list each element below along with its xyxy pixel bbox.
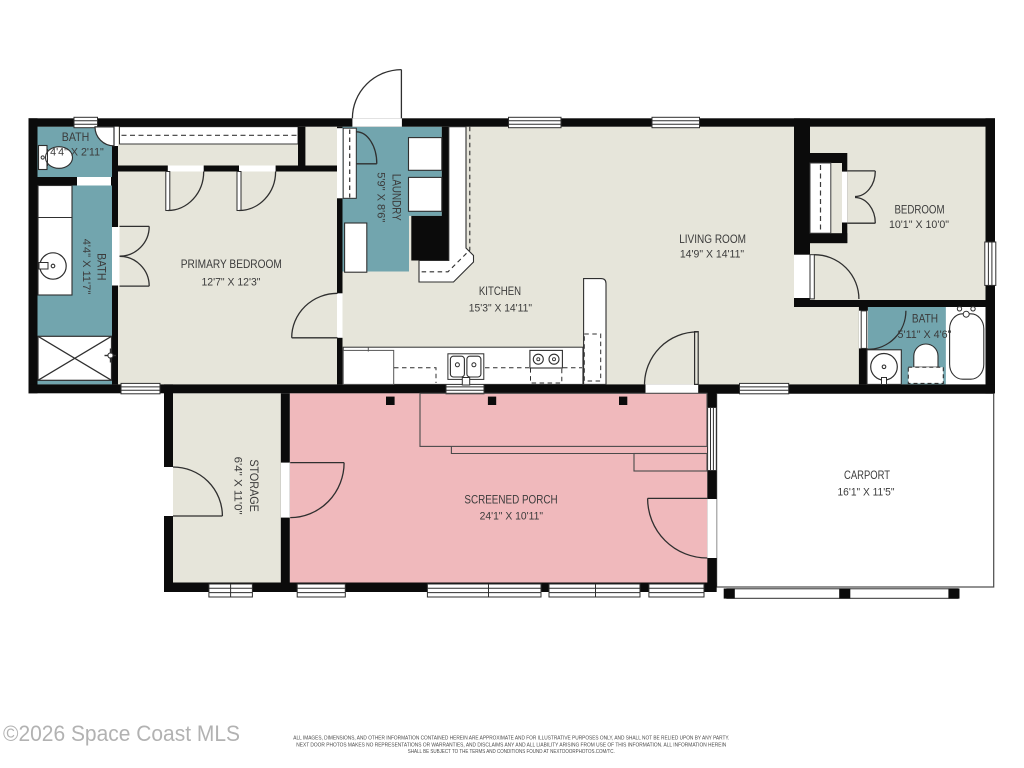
svg-text:BATH: BATH [95,253,109,280]
svg-text:KITCHEN: KITCHEN [479,284,521,298]
svg-text:SCREENED PORCH: SCREENED PORCH [464,492,557,506]
svg-text:14'9" X 14'11": 14'9" X 14'11" [680,249,744,261]
svg-text:5'11" X 4'6": 5'11" X 4'6" [898,329,952,341]
svg-text:CARPORT: CARPORT [844,468,891,482]
svg-text:NEXT DOOR PHOTOS MAKES NO REPR: NEXT DOOR PHOTOS MAKES NO REPRESENTATION… [296,742,726,748]
svg-text:5'9" X 8'6": 5'9" X 8'6" [374,172,386,222]
svg-text:ALL IMAGES, DIMENSIONS, AND OT: ALL IMAGES, DIMENSIONS, AND OTHER INFORM… [293,736,729,742]
svg-text:6'4" X 11'0": 6'4" X 11'0" [231,457,243,515]
svg-text:STORAGE: STORAGE [247,459,261,512]
svg-text:4'4" X 11'7": 4'4" X 11'7" [80,239,92,295]
svg-text:LAUNDRY: LAUNDRY [390,174,404,221]
svg-text:PRIMARY BEDROOM: PRIMARY BEDROOM [181,257,282,271]
svg-text:BATH: BATH [62,130,90,144]
svg-text:©2026 Space Coast MLS: ©2026 Space Coast MLS [3,721,240,746]
svg-text:12'7" X 12'3": 12'7" X 12'3" [202,276,261,288]
svg-text:15'3" X 14'11": 15'3" X 14'11" [469,302,532,314]
svg-text:24'1" X 10'11": 24'1" X 10'11" [480,511,543,523]
svg-text:10'1" X 10'0": 10'1" X 10'0" [889,219,949,231]
svg-text:BATH: BATH [912,312,938,326]
svg-text:4'4" X 2'11": 4'4" X 2'11" [50,146,104,158]
svg-text:SHALL BE SUBJECT TO THE TERMS: SHALL BE SUBJECT TO THE TERMS AND CONDIT… [408,749,615,755]
svg-text:16'1" X 11'5": 16'1" X 11'5" [838,487,895,499]
svg-text:BEDROOM: BEDROOM [894,202,944,216]
svg-text:LIVING ROOM: LIVING ROOM [679,232,746,246]
